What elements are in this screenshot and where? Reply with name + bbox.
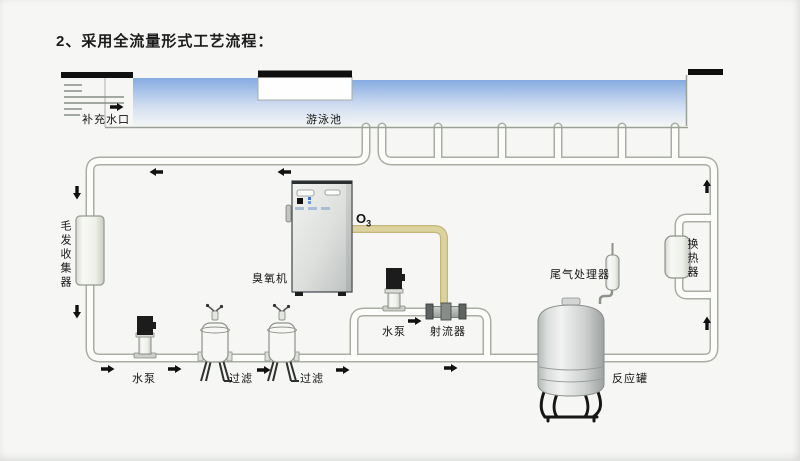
label-tail-gas-processor: 尾气处理器 xyxy=(550,266,610,282)
arrow-bottom-right-3 xyxy=(257,366,271,374)
o3-subscript: 3 xyxy=(366,219,371,229)
pool-water-right xyxy=(352,80,686,126)
arrow-bottom-right-1 xyxy=(101,365,115,373)
booster-pump xyxy=(383,268,405,311)
label-main-pump: 水泵 xyxy=(132,370,156,386)
cabinet-power-button xyxy=(297,198,303,204)
arrow-return-left-2 xyxy=(278,168,292,176)
main-pump xyxy=(134,316,156,358)
arrow-return-left-1 xyxy=(150,168,164,176)
arrow-left-down-2 xyxy=(73,305,81,319)
label-ejector: 射流器 xyxy=(430,323,466,339)
piping-diagram-canvas xyxy=(0,0,800,461)
label-makeup-inlet: 补充水口 xyxy=(82,111,130,127)
label-filter-2: 过滤 xyxy=(300,370,324,386)
arrow-bridge-right xyxy=(408,317,422,325)
filter-vessel-2 xyxy=(265,304,299,381)
reaction-tank xyxy=(538,298,604,421)
hair-collector-vessel xyxy=(76,216,104,285)
arrow-left-down-1 xyxy=(73,186,81,200)
cabinet-handle xyxy=(286,205,291,222)
ejector-device xyxy=(426,303,466,320)
label-booster-pump: 水泵 xyxy=(382,323,406,339)
label-o3: O3 xyxy=(356,211,371,229)
swimming-pool xyxy=(105,75,687,127)
cabinet-vent-slot xyxy=(297,190,314,196)
arrow-under-bridge-right xyxy=(444,364,458,372)
arrow-bottom-right-2 xyxy=(168,365,182,373)
label-swimming-pool: 游泳池 xyxy=(306,111,342,127)
ozone-generator-cabinet xyxy=(286,181,352,296)
label-heat-exchanger: 换热器 xyxy=(684,238,700,280)
process-flow-diagram: 2、采用全流量形式工艺流程： xyxy=(0,0,800,461)
filter-top-valve xyxy=(212,311,218,320)
filter-vessel-1 xyxy=(198,304,232,381)
cabinet-vent-slot xyxy=(325,190,340,195)
label-filter-1: 过滤 xyxy=(229,370,253,386)
pool-divider-deck xyxy=(258,77,352,100)
main-pump-motor xyxy=(137,316,153,335)
label-ozone-generator: 臭氧机 xyxy=(252,270,288,286)
o3-symbol: O xyxy=(356,211,366,226)
label-reaction-tank: 反应罐 xyxy=(612,370,648,386)
arrow-makeup-right xyxy=(110,103,124,111)
label-hair-collector: 毛发收集器 xyxy=(57,220,73,290)
filter-top-valve xyxy=(279,311,285,320)
arrow-bottom-right-4 xyxy=(336,366,350,374)
booster-pump-motor xyxy=(386,268,402,289)
pool-deck-bars xyxy=(61,69,723,78)
